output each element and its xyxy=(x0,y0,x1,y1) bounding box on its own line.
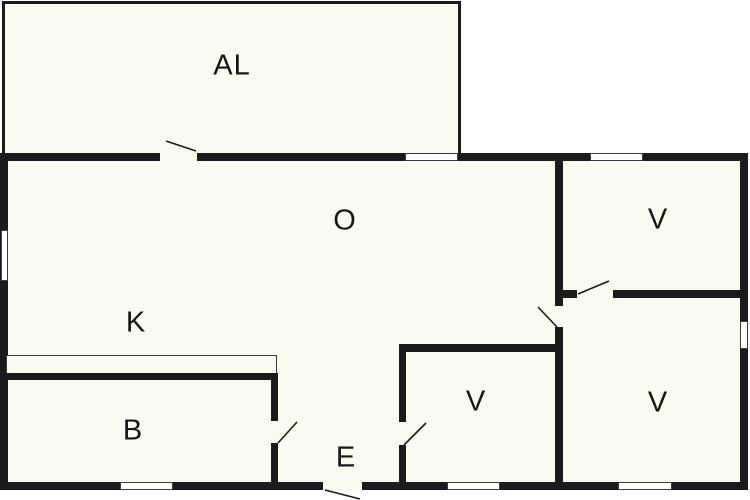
room-label-v-top-right: V xyxy=(648,206,668,235)
wall-bedroom-right-upper xyxy=(271,380,278,421)
window-bottom-vmiddle xyxy=(447,482,500,490)
window-right-vroom xyxy=(740,321,748,349)
room-label-al: AL xyxy=(213,52,250,81)
door-gap-entrance xyxy=(323,481,362,491)
wall-vmiddle-left-upper xyxy=(399,352,406,422)
window-bottom-vright xyxy=(618,482,672,490)
wall-bedroom-right-lower xyxy=(271,443,278,490)
room-label-entrance: E xyxy=(336,444,356,473)
door-gap-al xyxy=(160,152,197,162)
floorplan-canvas: AL O V K B E V V xyxy=(0,0,750,500)
door-swing-entrance xyxy=(325,490,360,499)
wall-bedroom-top xyxy=(0,373,278,380)
window-top-al xyxy=(405,153,458,161)
window-top-vroom xyxy=(590,153,643,161)
room-label-living: O xyxy=(333,207,357,236)
wall-v-divider-right xyxy=(613,290,740,298)
wall-v-divider-left xyxy=(563,290,577,298)
building-outline xyxy=(0,153,748,490)
room-label-kitchen: K xyxy=(126,309,146,338)
room-label-v-bottom-right: V xyxy=(648,389,668,418)
room-label-bedroom: B xyxy=(123,417,143,446)
wall-vmiddle-left-lower xyxy=(399,445,406,490)
window-left-living xyxy=(1,230,8,281)
kitchen-counter xyxy=(6,355,277,375)
wall-living-vroom-upper xyxy=(555,153,563,306)
window-bottom-bedroom xyxy=(120,482,173,490)
room-label-v-middle: V xyxy=(466,388,486,417)
wall-vmiddle-top xyxy=(399,344,563,352)
